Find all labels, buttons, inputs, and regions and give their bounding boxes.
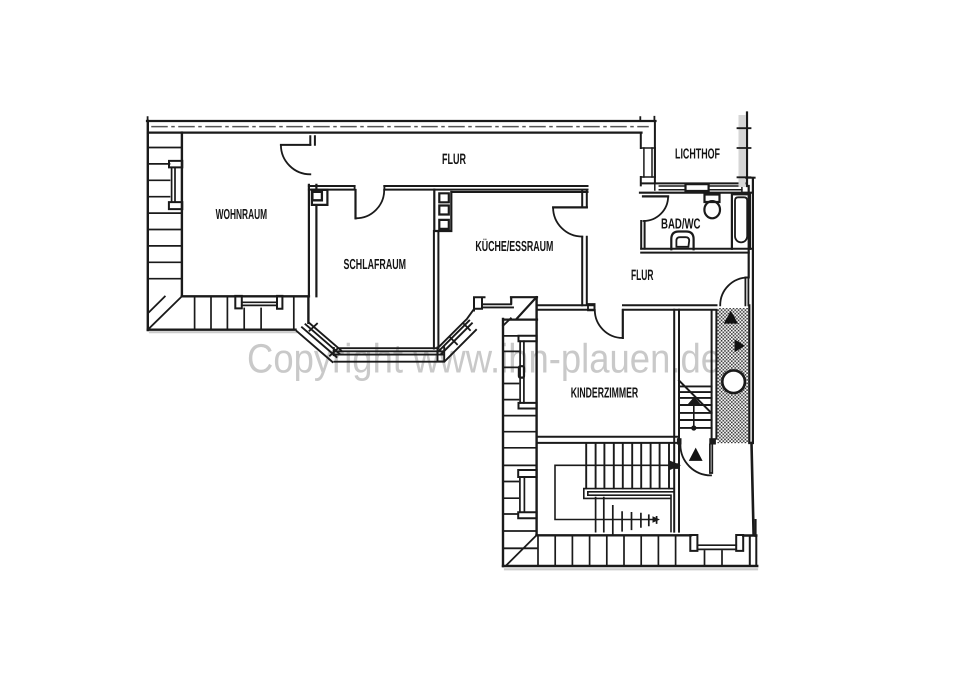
svg-text:LICHTHOF: LICHTHOF bbox=[675, 147, 720, 163]
svg-text:FLUR: FLUR bbox=[631, 267, 654, 284]
svg-text:FLUR: FLUR bbox=[442, 151, 466, 168]
svg-text:KINDERZIMMER: KINDERZIMMER bbox=[571, 386, 639, 402]
svg-text:BAD/WC: BAD/WC bbox=[661, 216, 701, 232]
svg-text:KÜCHE/ESSRAUM: KÜCHE/ESSRAUM bbox=[475, 238, 553, 255]
svg-text:WOHNRAUM: WOHNRAUM bbox=[216, 207, 268, 223]
svg-text:SCHLAFRAUM: SCHLAFRAUM bbox=[344, 257, 407, 273]
